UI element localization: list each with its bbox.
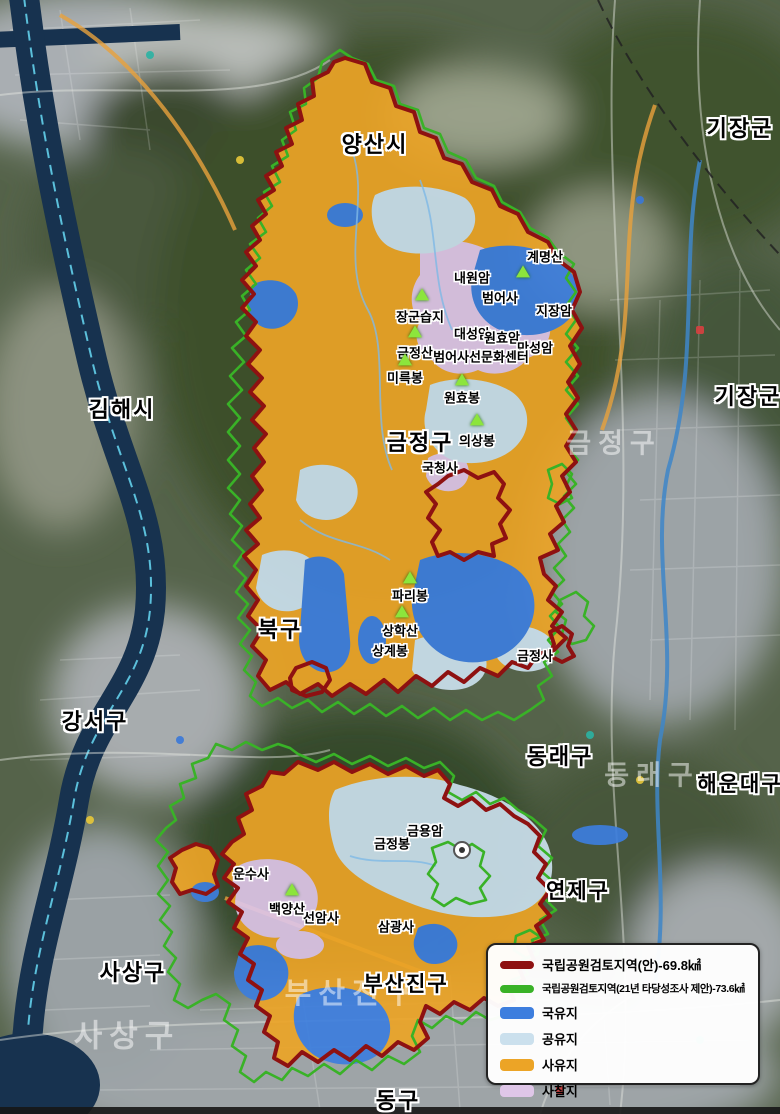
- legend-item: 사찰지: [500, 1081, 748, 1100]
- landmark-icon: [454, 842, 470, 858]
- legend-label: 사유지: [542, 1055, 578, 1074]
- legend-swatch: [500, 1033, 534, 1045]
- legend-item: 국립공원검토지역(안)-69.8㎢: [500, 955, 748, 974]
- image-bottom-edge: [0, 1107, 780, 1114]
- legend-swatch: [500, 1007, 534, 1019]
- legend-label: 국립공원검토지역(21년 타당성조사 제안)-73.6㎢: [542, 981, 744, 996]
- legend-label: 국유지: [542, 1003, 578, 1022]
- legend-item: 공유지: [500, 1029, 748, 1048]
- legend-item: 사유지: [500, 1055, 748, 1074]
- legend-items: 국립공원검토지역(안)-69.8㎢국립공원검토지역(21년 타당성조사 제안)-…: [500, 955, 748, 1100]
- legend-item: 국유지: [500, 1003, 748, 1022]
- legend: 국립공원검토지역(안)-69.8㎢국립공원검토지역(21년 타당성조사 제안)-…: [486, 943, 760, 1085]
- legend-swatch: [500, 961, 534, 969]
- legend-item: 국립공원검토지역(21년 타당성조사 제안)-73.6㎢: [500, 981, 748, 996]
- legend-swatch: [500, 1059, 534, 1071]
- legend-swatch: [500, 1085, 534, 1097]
- legend-label: 사찰지: [542, 1081, 578, 1100]
- legend-label: 공유지: [542, 1029, 578, 1048]
- legend-label: 국립공원검토지역(안)-69.8㎢: [542, 955, 701, 974]
- legend-swatch: [500, 985, 534, 993]
- map-canvas: 금정구동래구부산진구사상구양산시기장군김해시기장군금정구북구강서구동래구해운대구…: [0, 0, 780, 1114]
